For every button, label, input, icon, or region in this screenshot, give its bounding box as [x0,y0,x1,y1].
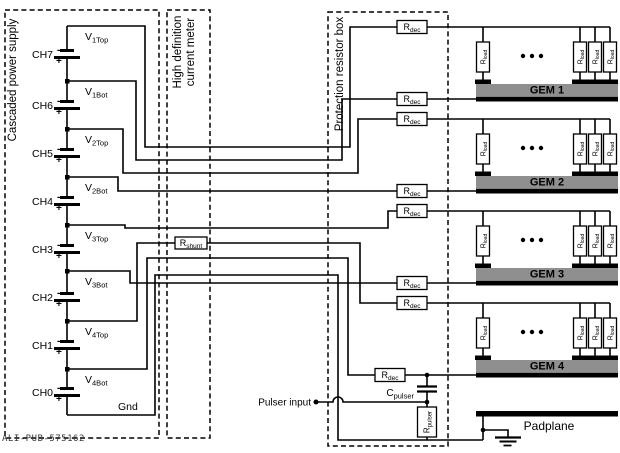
junction-dot [65,319,70,324]
plus-sign: + [56,347,62,358]
tap-label-v1top: V1Top [85,31,108,45]
tap-labels: V1Top V1Bot V2Top V2Bot V3Top V3Bot V4To… [85,31,138,413]
rdec-resistor-5 [397,205,427,219]
channel-label-ch4: CH4 [32,196,53,208]
tap-label-v1bot: V1Bot [85,86,108,100]
rpulser-resistor: Rpulser [418,402,437,440]
watermark: ALI-PUB-575162 [2,434,85,444]
minus-sign: - [57,288,60,299]
junction-dot [65,175,70,180]
minus-sign: - [57,192,60,203]
gem-2-stage [427,119,618,194]
plus-sign: + [56,155,62,166]
plus-sign: + [56,107,62,118]
gem-1-stage [427,27,618,102]
ground-branch-wire [483,430,508,437]
gem-3-stage [427,211,618,286]
plus-sign: + [56,251,62,262]
plus-sign: + [56,394,62,405]
tap-label-v2bot: V2Bot [85,182,108,196]
ground-label: Gnd [118,401,138,413]
junction-dot [65,367,70,372]
power-supply-box [5,10,159,438]
polarity-marks: -+ -+ -+ -+ -+ -+ -+ -+ [56,45,62,405]
gem-2-label: GEM 2 [530,177,564,189]
wire-v1bot [67,81,397,160]
minus-sign: - [57,96,60,107]
minus-sign: - [57,45,60,56]
tap-label-v3bot: V3Bot [85,276,108,290]
rshunt-resistor: Rshunt [175,237,207,250]
junction-dot [481,428,486,433]
minus-sign: - [57,336,60,347]
junction-dot [65,79,70,84]
wire-v2top [67,119,397,173]
minus-sign: - [57,240,60,251]
channel-label-ch0: CH0 [32,387,53,399]
minus-sign: - [57,383,60,394]
junction-dot [65,127,70,132]
channel-label-ch2: CH2 [32,292,53,304]
protection-box-label: Protection resistor box [334,17,346,132]
minus-sign: - [57,144,60,155]
plus-sign: + [56,203,62,214]
circuit-canvas: Rdec Rload Cascaded p [0,0,620,453]
junction-dot [425,373,430,378]
channel-label-ch5: CH5 [32,148,53,160]
rdec-resistor-7 [397,297,427,311]
current-meter-label-line1: High definition [172,16,184,89]
tap-label-v4bot: V4Bot [85,374,108,388]
plus-sign: + [56,56,62,67]
channel-label-ch1: CH1 [32,340,53,352]
tap-label-v3top: V3Top [85,230,108,244]
channel-label-ch3: CH3 [32,244,53,256]
channel-label-ch6: CH6 [32,100,53,112]
power-supply-box-label: Cascaded power supply [7,18,19,141]
plus-sign: + [56,299,62,310]
channel-labels: CH7 CH6 CH5 CH4 CH3 CH2 CH1 CH0 [32,49,53,399]
pulser-input-label: Pulser input [258,398,311,409]
junction-dot [425,400,430,405]
wire-v3top [67,211,397,228]
ground-icon [495,438,521,446]
channel-label-ch7: CH7 [32,49,53,61]
gem-3-label: GEM 3 [530,269,564,281]
rdec-resistor-2 [397,93,427,107]
padplane-label: Padplane [524,419,575,433]
padplane-bar [476,411,618,417]
wire-v2bot [67,177,397,191]
rdec-resistor-3 [397,113,427,127]
rdec-resistor-1 [397,21,427,35]
junction-dot [65,269,70,274]
cpulser-label: Cpulser [386,388,414,401]
junction-dot [65,223,70,228]
schematic-figure: Rdec Rload Cascaded p [0,0,620,453]
current-meter-label-line2: current meter [185,18,197,87]
gem-4-label: GEM 4 [530,361,565,373]
gem-1-label: GEM 1 [530,85,564,97]
rdec-resistor-6 [397,277,427,291]
rdec-resistor-4 [397,185,427,199]
gem-4-stage [427,303,618,378]
tap-label-v4top: V4Top [85,326,108,340]
tap-label-v2top: V2Top [85,134,108,148]
rdec-resistor-8 [375,369,405,383]
